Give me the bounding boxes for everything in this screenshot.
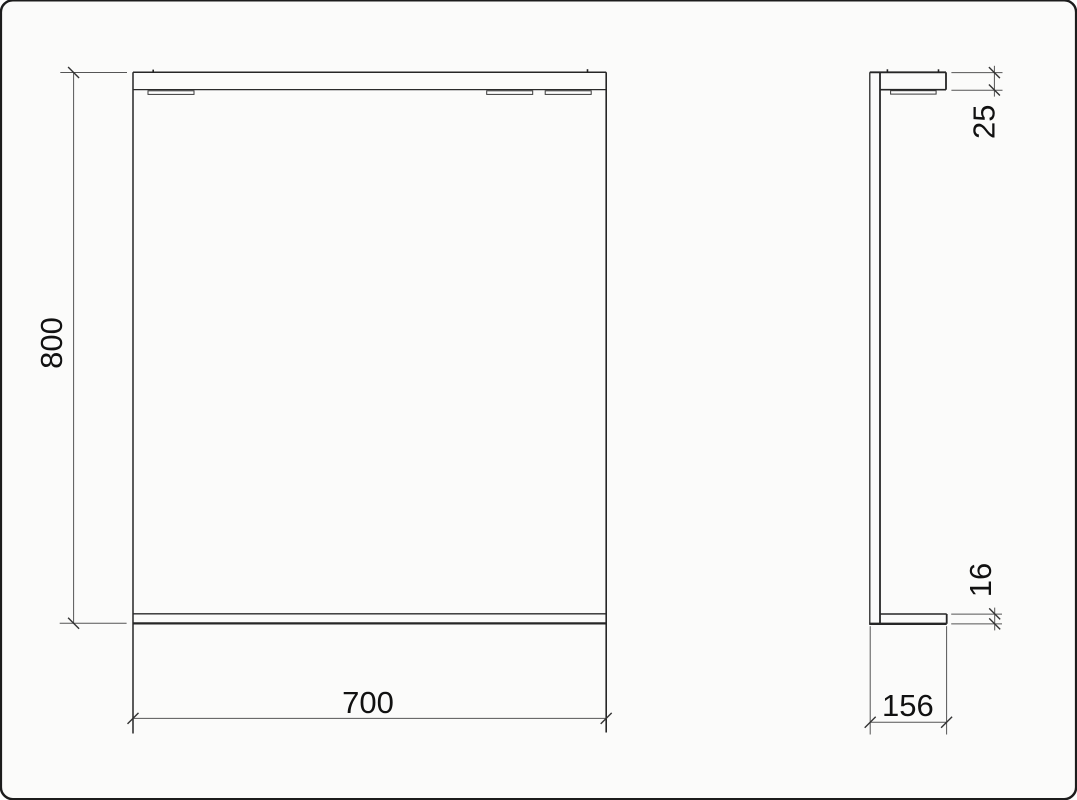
svg-text:700: 700 [342,685,394,720]
svg-text:156: 156 [882,688,934,723]
svg-text:800: 800 [34,317,69,369]
svg-text:16: 16 [963,563,998,597]
svg-text:25: 25 [967,104,1002,138]
